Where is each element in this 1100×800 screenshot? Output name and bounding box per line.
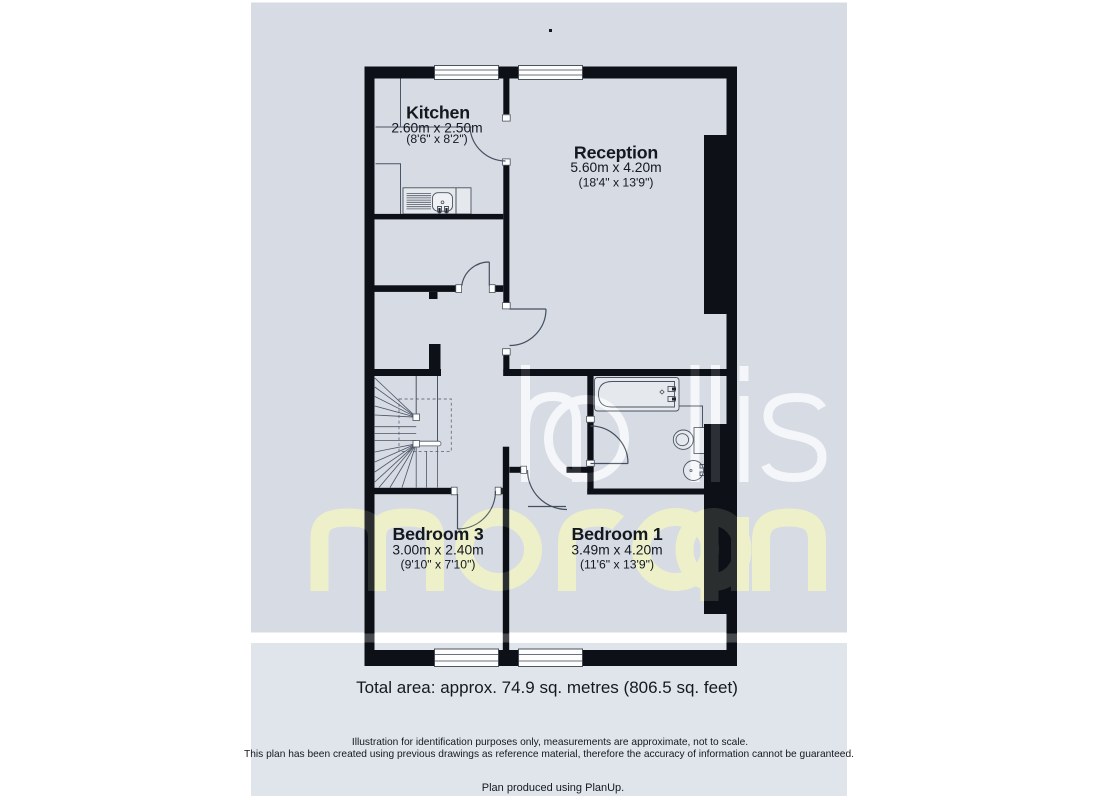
svg-text:Kitchen: Kitchen: [406, 103, 470, 123]
svg-text:(11'6" x 13'9"): (11'6" x 13'9"): [580, 558, 654, 572]
svg-text:(18'4" x 13'9"): (18'4" x 13'9"): [579, 176, 654, 190]
svg-text:Plan produced using PlanUp.: Plan produced using PlanUp.: [482, 782, 624, 794]
svg-text:This plan has been created usi: This plan has been created using previou…: [244, 749, 854, 760]
svg-text:Illustration for identificatio: Illustration for identification purposes…: [352, 737, 748, 748]
svg-text:(9'10" x 7'10"): (9'10" x 7'10"): [401, 558, 476, 572]
svg-text:(8'6" x 8'2"): (8'6" x 8'2"): [406, 132, 467, 146]
svg-text:5.60m x 4.20m: 5.60m x 4.20m: [570, 160, 661, 175]
svg-text:3.00m x 2.40m: 3.00m x 2.40m: [392, 543, 483, 558]
svg-text:3.49m x 4.20m: 3.49m x 4.20m: [571, 543, 662, 558]
svg-text:Bedroom 1: Bedroom 1: [571, 524, 662, 544]
svg-text:Bedroom 3: Bedroom 3: [392, 524, 483, 544]
svg-text:Total area: approx. 74.9 sq. m: Total area: approx. 74.9 sq. metres (806…: [356, 678, 738, 697]
